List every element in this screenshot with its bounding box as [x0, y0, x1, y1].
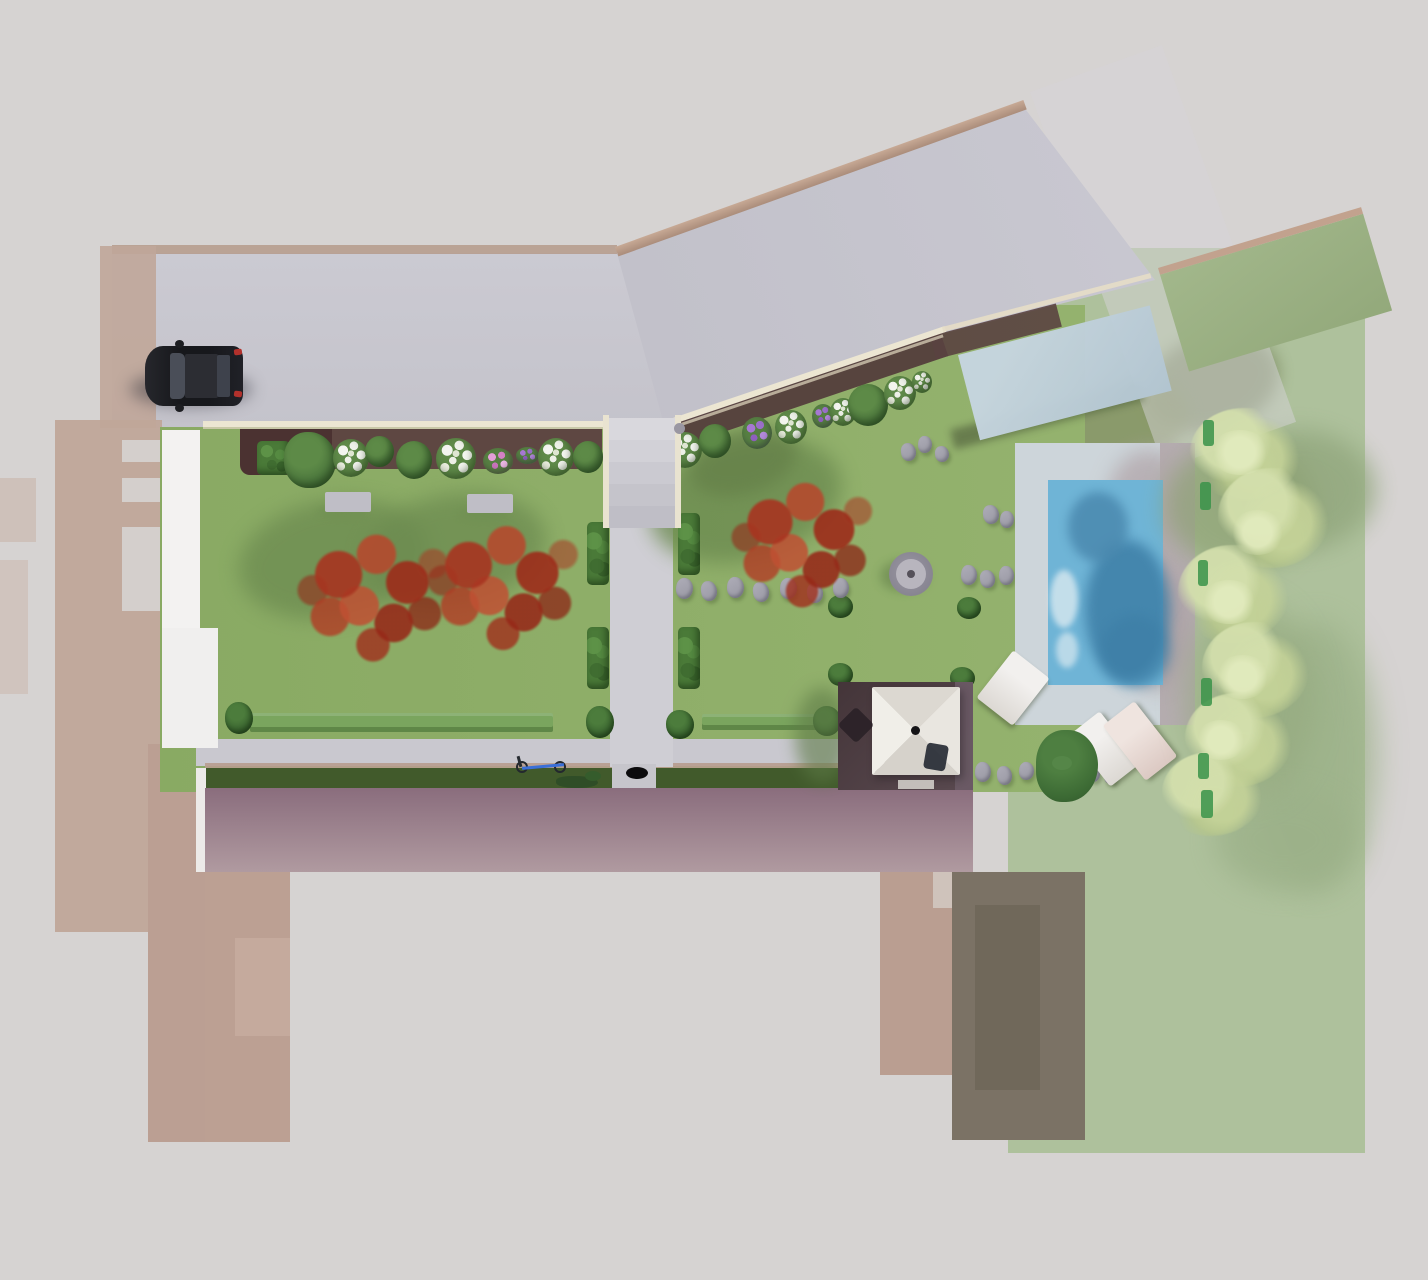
hedge-segment-2 — [587, 627, 609, 689]
pavilion-chair-2 — [923, 742, 949, 771]
espalier-trunk — [1201, 790, 1213, 818]
car-mirror-1 — [175, 340, 184, 348]
espalier-trunk — [1201, 678, 1212, 706]
flower-bush-green — [848, 384, 888, 426]
flower-bush-green — [699, 424, 731, 458]
flower-bush-white — [436, 438, 476, 479]
house-shadow-east-inner — [975, 905, 1040, 1090]
corner-bush-3 — [666, 710, 694, 739]
site-plan-canvas — [0, 0, 1428, 1280]
flower-bush-green — [573, 441, 603, 473]
parasol-center — [911, 726, 920, 735]
ball-bush-2 — [957, 597, 981, 619]
flower-bush-pink — [483, 448, 513, 474]
garden-wall-west-2 — [162, 628, 218, 748]
flower-bush-white — [912, 371, 932, 393]
flower-bush-white — [538, 438, 574, 476]
large-bush — [284, 432, 336, 488]
espalier-highlight — [1215, 655, 1270, 699]
stairs-post — [674, 423, 685, 434]
house-wing-west-inner — [235, 938, 290, 1036]
driveway-top-shadow — [112, 245, 617, 254]
red-maple-tree-3 — [722, 468, 882, 622]
stair-step-4 — [609, 484, 675, 506]
flower-bush-white — [333, 439, 369, 477]
pool-tree-shadow-3 — [1100, 615, 1170, 687]
corner-bush-2 — [586, 706, 614, 738]
espalier-highlight — [1210, 430, 1270, 475]
car-windshield — [170, 353, 185, 399]
flower-bush-green — [396, 441, 432, 479]
stair-step-1 — [609, 418, 675, 440]
stair-step-5 — [609, 506, 675, 528]
espalier-highlight — [1200, 580, 1258, 624]
espalier-trunk — [1198, 753, 1209, 779]
garden-path — [610, 515, 673, 767]
red-maple-tree-2 — [417, 512, 589, 664]
espalier-trunk — [1198, 560, 1208, 586]
pool-tree-shadow-2 — [1068, 492, 1128, 562]
bench-1 — [325, 492, 371, 512]
stair-step-2 — [609, 440, 675, 462]
flower-bush-white — [775, 410, 807, 444]
fountain-spout — [907, 570, 915, 578]
flower-bush-green — [365, 436, 394, 467]
fence-gap-2 — [122, 478, 160, 502]
car-roof-glass — [185, 354, 218, 398]
planter-hedge-left — [250, 713, 553, 732]
house-south-roof — [205, 788, 973, 872]
toy-on-path-2 — [585, 771, 601, 781]
fence-gap-3 — [122, 527, 160, 611]
car-taillight-1 — [234, 348, 243, 355]
garden-wall-west-1 — [162, 430, 200, 632]
hedge-segment-4 — [678, 627, 700, 689]
house-wing-east-notch — [933, 872, 952, 908]
car-taillight-2 — [234, 390, 243, 397]
hedge-segment-3 — [678, 513, 700, 575]
espalier-trunk — [1200, 482, 1211, 510]
pavilion-step — [898, 780, 934, 789]
fence-gap-1 — [122, 440, 160, 462]
hedge-segment-1 — [587, 522, 609, 585]
espalier-highlight — [1230, 510, 1285, 555]
drain-hole — [626, 767, 648, 779]
fence-shadow-sliver-1 — [0, 478, 36, 542]
car-rear-window — [217, 355, 230, 397]
flower-bush-purple — [742, 417, 772, 449]
bench-2 — [467, 494, 513, 513]
pool-reflection-1 — [1050, 570, 1078, 628]
espalier-trunk — [1203, 420, 1214, 446]
large-shrub-highlight — [1052, 756, 1072, 770]
corner-bush-1 — [225, 702, 253, 734]
car-mirror-2 — [175, 404, 184, 412]
pool-reflection-2 — [1056, 632, 1078, 668]
fence-shadow-sliver-2 — [0, 560, 28, 694]
flower-bush-purple — [516, 447, 539, 464]
stair-step-3 — [609, 462, 675, 484]
